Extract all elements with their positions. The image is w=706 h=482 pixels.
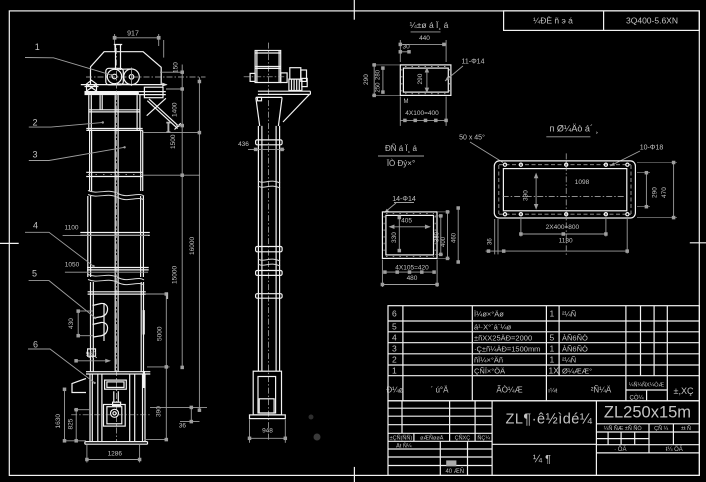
svg-text:±ñXX25ÄÐ=2000: ±ñXX25ÄÐ=2000 bbox=[474, 333, 532, 342]
svg-text:440: 440 bbox=[419, 35, 430, 42]
svg-text:1500: 1500 bbox=[170, 134, 177, 149]
svg-text:1: 1 bbox=[35, 42, 40, 52]
svg-text:480: 480 bbox=[407, 275, 418, 282]
svg-text:ÀÑ6ÑÒ: ÀÑ6ÑÒ bbox=[562, 344, 588, 353]
svg-text:· ÖÄ: · ÖÄ bbox=[614, 446, 626, 453]
svg-text:948: 948 bbox=[262, 428, 273, 435]
svg-text:ÑÇ¼: ÑÇ¼ bbox=[477, 435, 490, 442]
svg-text:²¼Ñ: ²¼Ñ bbox=[562, 355, 576, 364]
svg-text:2: 2 bbox=[33, 118, 38, 128]
svg-text:11-Φ14: 11-Φ14 bbox=[462, 59, 485, 66]
svg-text:5: 5 bbox=[550, 332, 555, 342]
svg-text:5: 5 bbox=[392, 321, 397, 331]
svg-text:30: 30 bbox=[403, 44, 411, 51]
svg-text:Äŧ Ñ¼: Äŧ Ñ¼ bbox=[396, 443, 412, 450]
svg-text:1098: 1098 bbox=[575, 179, 590, 186]
svg-text:ÃÒ¼Æ: ÃÒ¼Æ bbox=[496, 386, 522, 395]
svg-text:´ ú°Ä: ´ ú°Ä bbox=[431, 386, 450, 395]
svg-text:¼Ñ ÑÆ ±Ñ ÑÒ: ¼Ñ ÑÆ ±Ñ ÑÒ bbox=[604, 425, 643, 432]
svg-text:3: 3 bbox=[392, 343, 397, 353]
svg-text:405: 405 bbox=[401, 217, 412, 224]
svg-text:1180: 1180 bbox=[559, 238, 573, 245]
svg-text:15000: 15000 bbox=[172, 266, 179, 284]
svg-text:330: 330 bbox=[391, 232, 398, 243]
svg-text:1630: 1630 bbox=[55, 414, 62, 429]
svg-text:1400: 1400 bbox=[172, 102, 179, 117]
svg-text:290: 290 bbox=[417, 73, 424, 84]
svg-text:3Q400-5.6ΧΝ: 3Q400-5.6ΧΝ bbox=[626, 16, 678, 26]
svg-text:±,XÇ: ±,XÇ bbox=[674, 386, 694, 396]
svg-text:10-Φ18: 10-Φ18 bbox=[640, 145, 664, 152]
svg-text:390: 390 bbox=[523, 190, 530, 201]
svg-text:1100: 1100 bbox=[65, 225, 79, 232]
svg-text:á¹·X°´á´¼ø: á¹·X°´á´¼ø bbox=[474, 322, 512, 331]
svg-text:1050: 1050 bbox=[65, 261, 80, 268]
svg-text:1: 1 bbox=[550, 343, 555, 353]
svg-text:ZL250x15m: ZL250x15m bbox=[604, 404, 691, 422]
svg-text:36: 36 bbox=[488, 238, 494, 245]
svg-text:380: 380 bbox=[434, 231, 440, 242]
svg-text:917: 917 bbox=[127, 31, 139, 38]
svg-text:M: M bbox=[404, 99, 409, 105]
svg-text:¼ÐÈ ñ э á: ¼ÐÈ ñ э á bbox=[533, 16, 573, 26]
svg-text:¼±ø á Ï¸ á: ¼±ø á Ï¸ á bbox=[410, 20, 449, 30]
svg-text:1: 1 bbox=[550, 354, 555, 364]
svg-text:3: 3 bbox=[33, 150, 38, 160]
svg-text:6: 6 bbox=[33, 340, 38, 350]
svg-text:1X: 1X bbox=[549, 365, 560, 375]
svg-text:6: 6 bbox=[392, 309, 397, 319]
svg-text:5000: 5000 bbox=[157, 326, 164, 341]
svg-text:36: 36 bbox=[179, 422, 187, 429]
svg-text:¼Ñ¼ÑX¼ÒÆ: ¼Ñ¼ÑX¼ÒÆ bbox=[629, 382, 665, 389]
svg-text:40 ÆÑ: 40 ÆÑ bbox=[445, 468, 464, 475]
svg-text:·Ç±ñ¼ÄÐ=1500mm: ·Ç±ñ¼ÄÐ=1500mm bbox=[474, 344, 540, 353]
svg-text:±ÇÑ(ÑÑ): ±ÇÑ(ÑÑ) bbox=[390, 435, 413, 442]
svg-text:4X100=400: 4X100=400 bbox=[405, 110, 439, 117]
svg-text:Ø¼ÆÆ°: Ø¼ÆÆ° bbox=[562, 366, 592, 375]
svg-text:150: 150 bbox=[173, 62, 180, 73]
svg-text:ñÏ¼×°Äñ: ñÏ¼×°Äñ bbox=[474, 355, 503, 364]
svg-text:4X105=420: 4X105=420 bbox=[395, 265, 429, 272]
svg-text:¼ ¶: ¼ ¶ bbox=[533, 454, 551, 466]
svg-text:1: 1 bbox=[392, 365, 397, 375]
svg-text:280: 280 bbox=[376, 69, 382, 80]
svg-text:400: 400 bbox=[441, 236, 447, 247]
svg-text:5: 5 bbox=[32, 269, 37, 279]
svg-text:825: 825 bbox=[68, 418, 75, 429]
svg-text:²¼Ñ: ²¼Ñ bbox=[562, 310, 576, 319]
svg-text:960: 960 bbox=[86, 351, 97, 358]
svg-text:250: 250 bbox=[376, 82, 382, 93]
svg-text:2X400=800: 2X400=800 bbox=[546, 224, 580, 231]
svg-text:470: 470 bbox=[661, 187, 668, 198]
svg-text:±ŧ Ñ: ±ŧ Ñ bbox=[681, 425, 691, 432]
svg-text:460: 460 bbox=[451, 232, 457, 243]
svg-text:436: 436 bbox=[238, 141, 249, 148]
svg-text:ÐÑ á Ï¸ á: ÐÑ á Ï¸ á bbox=[385, 144, 418, 153]
svg-text:1: 1 bbox=[550, 309, 555, 319]
svg-text:50 x 45°: 50 x 45° bbox=[459, 134, 485, 142]
svg-text:16000: 16000 bbox=[189, 237, 196, 255]
svg-text:4: 4 bbox=[33, 221, 38, 231]
svg-text:1286: 1286 bbox=[108, 451, 123, 458]
svg-text:ZL¶·ê½ìdé¼: ZL¶·ê½ìdé¼ bbox=[506, 412, 593, 428]
svg-text:Ð¼ø: Ð¼ø bbox=[386, 386, 403, 395]
svg-text:ŧ¼ ÖÄ: ŧ¼ ÖÄ bbox=[666, 446, 683, 453]
svg-text:ÇÑÏ×°ÖÄ: ÇÑÏ×°ÖÄ bbox=[474, 366, 505, 375]
svg-text:430: 430 bbox=[68, 318, 75, 329]
svg-text:øÆÑøøÄ: øÆÑøøÄ bbox=[420, 435, 444, 442]
svg-text:290: 290 bbox=[363, 74, 370, 85]
svg-text:14-Φ14: 14-Φ14 bbox=[392, 196, 416, 203]
svg-text:ÏÒ Ðý×°: ÏÒ Ðý×° bbox=[387, 159, 415, 168]
svg-text:4: 4 bbox=[392, 332, 397, 342]
svg-text:Ï¼ø×°Äø: Ï¼ø×°Äø bbox=[474, 310, 504, 319]
svg-text:ÇÑ ¼: ÇÑ ¼ bbox=[654, 425, 668, 432]
svg-text:2: 2 bbox=[392, 354, 397, 364]
svg-text:ı¼ŧ: ı¼ŧ bbox=[548, 388, 557, 395]
svg-text:ÇÑXÇ: ÇÑXÇ bbox=[455, 435, 471, 442]
svg-text:п Ø¼Äò á´ ¸: п Ø¼Äò á´ ¸ bbox=[550, 124, 599, 134]
svg-text:290: 290 bbox=[652, 187, 659, 198]
svg-text:ÀÑ6ÑÒ: ÀÑ6ÑÒ bbox=[562, 333, 588, 342]
svg-text:²Ñ¼Ä: ²Ñ¼Ä bbox=[591, 386, 612, 395]
